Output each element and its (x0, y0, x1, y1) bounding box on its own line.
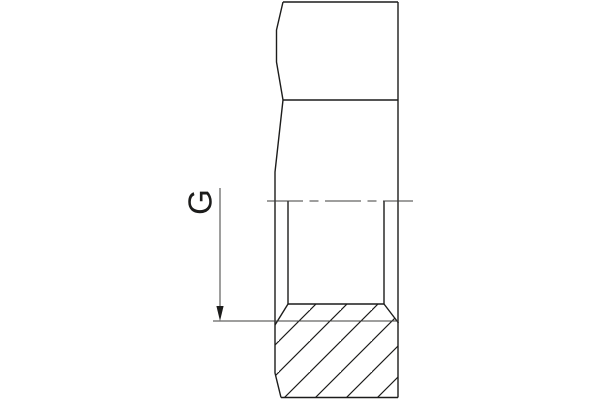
thread-size-label: G (182, 189, 219, 215)
drawing-canvas: G (0, 0, 600, 400)
section-hatch-area (275, 304, 399, 398)
technical-drawing: G (0, 0, 600, 400)
dimension-arrowhead (216, 306, 223, 321)
